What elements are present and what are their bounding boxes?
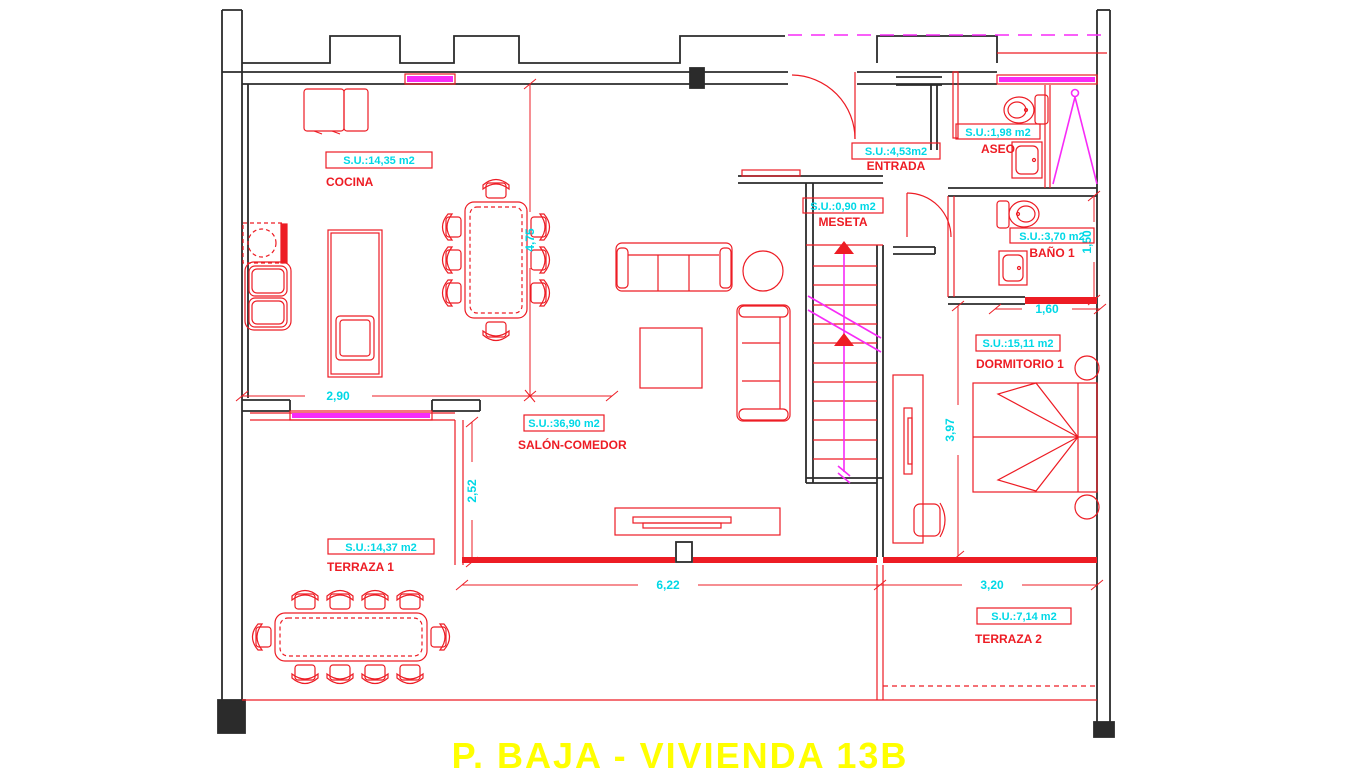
area-terraza1: S.U.:14,37 m2 [345,542,417,554]
room-label-meseta: S.U.:0,90 m2 MESETA [803,198,883,229]
area-salon: S.U.:36,90 m2 [528,418,600,430]
dim-kitchen-width: 2,90 [326,389,350,403]
plan-title: P. BAJA - VIVIENDA 13B [452,735,909,776]
area-bano1: S.U.:3,70 m2 [1019,231,1084,243]
living-room-furniture [615,243,790,535]
dim-salon-width: 6,22 [656,578,680,592]
name-terraza1: TERRAZA 1 [327,560,394,574]
name-salon: SALÓN-COMEDOR [518,437,627,452]
shower-enclosure [1053,90,1097,185]
stair-direction-arrow [808,252,881,483]
room-label-entrada: S.U.:4,53m2 ENTRADA [852,143,940,173]
area-dormitorio1: S.U.:15,11 m2 [983,338,1054,350]
name-cocina: COCINA [326,175,374,189]
area-cocina: S.U.:14,35 m2 [343,155,415,167]
dim-kitchen-height: 4,75 [523,228,537,252]
dimension-texts: 4,75 2,90 2,52 6,22 3,20 1,60 1,50 3,97 [326,228,1094,592]
staircase [806,241,883,483]
dim-bath1-width: 1,60 [1035,302,1059,316]
room-labels: S.U.:14,35 m2 COCINA S.U.:36,90 m2 SALÓN… [326,124,1094,646]
name-aseo: ASEO [981,142,1015,156]
name-bano1: BAÑO 1 [1029,245,1075,260]
kitchen-furniture [243,89,382,377]
name-meseta: MESETA [818,215,867,229]
room-label-terraza2: S.U.:7,14 m2 TERRAZA 2 [975,608,1071,646]
area-meseta: S.U.:0,90 m2 [810,201,875,213]
name-terraza2: TERRAZA 2 [975,632,1042,646]
area-terraza2: S.U.:7,14 m2 [991,611,1056,623]
dim-terrace2-width: 3,20 [980,578,1004,592]
area-entrada: S.U.:4,53m2 [865,146,927,158]
room-label-salon: S.U.:36,90 m2 SALÓN-COMEDOR [518,415,627,452]
room-label-cocina: S.U.:14,35 m2 COCINA [326,152,432,189]
stair-arrowhead [834,241,854,254]
floor-plan-canvas: 4,75 2,90 2,52 6,22 3,20 1,60 1,50 3,97 … [0,0,1355,782]
bedroom-furniture [893,356,1099,543]
room-label-dormitorio1: S.U.:15,11 m2 DORMITORIO 1 [976,335,1064,371]
terrace-table-set [253,591,450,684]
dim-terrace1-height: 2,52 [465,479,479,503]
room-label-terraza1: S.U.:14,37 m2 TERRAZA 1 [327,539,434,574]
room-label-aseo: S.U.:1,98 m2 ASEO [956,124,1040,156]
dining-table-set [443,180,550,341]
name-dormitorio1: DORMITORIO 1 [976,357,1064,371]
area-aseo: S.U.:1,98 m2 [965,127,1030,139]
name-entrada: ENTRADA [867,159,926,173]
dim-bedroom-height: 3,97 [943,418,957,442]
